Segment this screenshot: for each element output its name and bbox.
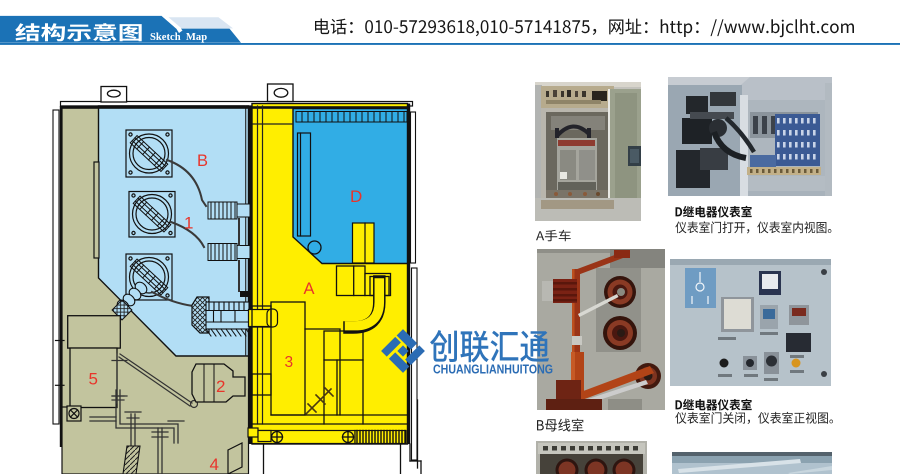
svg-text:B: B xyxy=(197,152,208,170)
svg-text:4: 4 xyxy=(210,455,219,474)
svg-text:3: 3 xyxy=(285,354,294,371)
svg-text:CHUANGLIANHUITONG: CHUANGLIANHUITONG xyxy=(433,362,553,377)
svg-text:A: A xyxy=(304,280,315,298)
svg-text:5: 5 xyxy=(89,370,98,389)
svg-text:D: D xyxy=(350,187,362,206)
svg-text:1: 1 xyxy=(184,214,193,233)
svg-text:2: 2 xyxy=(216,377,225,396)
svg-text:Sketch Map: Sketch Map xyxy=(150,32,207,43)
